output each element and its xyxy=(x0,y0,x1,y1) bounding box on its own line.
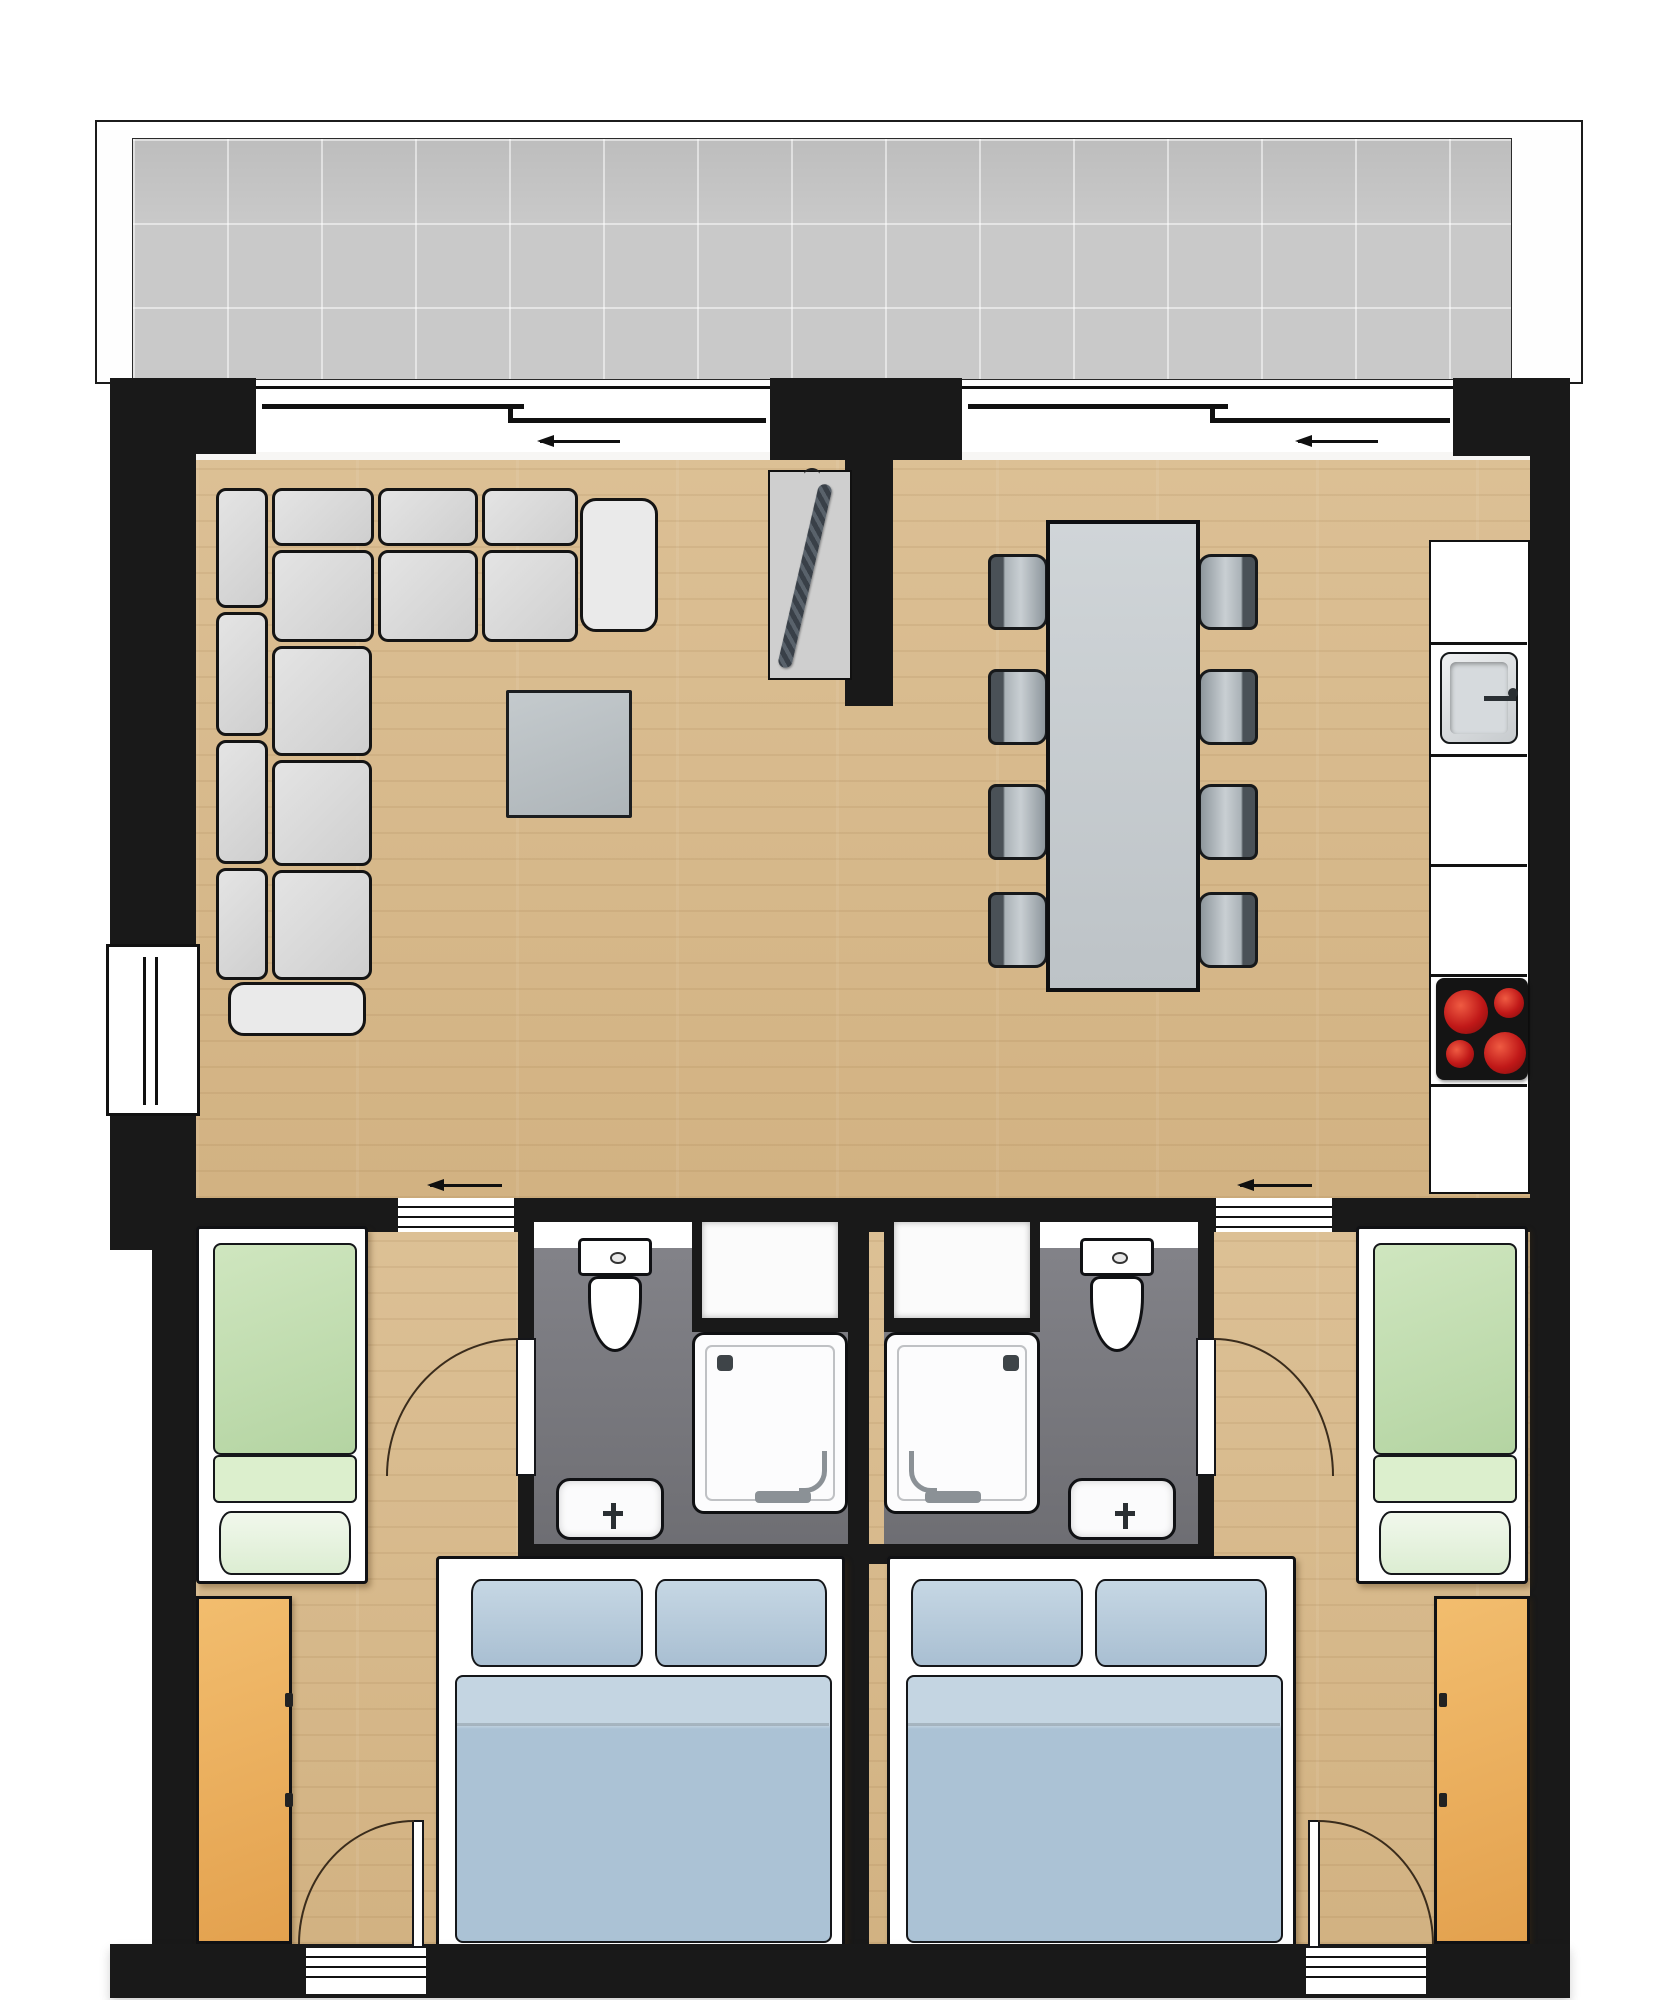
balcony-window-left xyxy=(256,382,770,452)
faucet-crossbar xyxy=(603,1511,623,1516)
sofa-seat-cushion xyxy=(378,550,478,642)
niche-shelf xyxy=(894,1222,1030,1318)
burner xyxy=(1446,1040,1474,1068)
counter-divider xyxy=(1431,754,1527,757)
faucet-crossbar xyxy=(1115,1511,1135,1516)
sofa-back-cushion xyxy=(272,488,374,546)
bed-pillow xyxy=(911,1579,1083,1667)
duvet-fold-line xyxy=(908,1723,1280,1726)
sofa-back-cushion xyxy=(216,488,268,608)
toilet-cistern xyxy=(1080,1238,1154,1276)
counter-divider xyxy=(1431,1084,1527,1087)
floor-plan-canvas xyxy=(0,0,1670,2000)
wardrobe-handle xyxy=(285,1693,293,1707)
left-wall-window xyxy=(106,944,200,1116)
dining-chair xyxy=(1198,669,1258,745)
shower-drain-icon xyxy=(717,1355,733,1371)
double-bed-right xyxy=(887,1556,1296,1948)
stove xyxy=(1436,978,1528,1080)
wardrobe-handle xyxy=(1439,1793,1447,1807)
window-glass-line xyxy=(143,957,146,1105)
entry-door-threshold xyxy=(1306,1948,1426,1994)
shower-tray xyxy=(692,1332,848,1514)
hanger-hook-icon xyxy=(804,468,820,480)
slide-direction-arrow-icon xyxy=(1298,440,1378,443)
right-wall xyxy=(1530,456,1570,1948)
bed-pillow xyxy=(471,1579,643,1667)
kitchen-sink xyxy=(1440,652,1518,744)
left-wall-upper xyxy=(110,378,196,944)
window-glass-line xyxy=(155,957,158,1105)
counter-divider xyxy=(1431,864,1527,867)
wardrobe-handle xyxy=(1439,1693,1447,1707)
bathroom-side-wall xyxy=(1198,1198,1214,1340)
bed-pillow xyxy=(1379,1511,1511,1575)
window-frame-line xyxy=(962,386,1453,389)
t-partition-stem xyxy=(845,456,893,706)
counter-divider xyxy=(1431,642,1527,645)
duvet-fold-line xyxy=(457,1723,829,1726)
sliding-opening-left xyxy=(398,1198,514,1232)
sofa-back-cushion xyxy=(216,740,268,864)
bed-pillow xyxy=(655,1579,827,1667)
left-wall-lower xyxy=(152,1248,196,1948)
top-wall-right-segment xyxy=(1453,378,1570,456)
sliding-pane-line xyxy=(968,404,1228,409)
shower-handle xyxy=(925,1491,981,1503)
sofa-back-cushion xyxy=(216,868,268,980)
left-wall-middle xyxy=(110,1116,196,1250)
bed-duvet xyxy=(906,1675,1283,1943)
sliding-pane-line xyxy=(1210,418,1450,423)
faucet-icon xyxy=(611,1503,616,1529)
balcony-tiles xyxy=(132,138,1512,380)
bed-mattress xyxy=(1373,1243,1517,1455)
kitchen-counter xyxy=(1429,540,1530,1194)
bathroom-left xyxy=(518,1198,866,1564)
double-bed-left xyxy=(436,1556,845,1948)
wardrobe-right xyxy=(1434,1596,1530,1944)
dining-chair xyxy=(988,892,1048,968)
dining-chair xyxy=(988,784,1048,860)
sofa-armrest-right xyxy=(580,498,658,632)
bathroom-door-leaf xyxy=(1196,1338,1216,1476)
sofa-seat-cushion xyxy=(482,550,578,642)
top-wall-middle-segment xyxy=(770,378,962,460)
single-bed-left xyxy=(196,1226,368,1584)
niche-shelf xyxy=(702,1222,838,1318)
sliding-pane-line xyxy=(262,404,524,409)
hanging-garment xyxy=(777,483,833,669)
burner xyxy=(1494,988,1524,1018)
sliding-opening-right xyxy=(1216,1198,1332,1232)
bathroom-washbasin xyxy=(556,1478,664,1540)
shower-tray xyxy=(884,1332,1040,1514)
bed-pillow xyxy=(1095,1579,1267,1667)
sofa-back-cushion xyxy=(378,488,478,546)
faucet-icon xyxy=(1123,1503,1128,1529)
bed-duvet xyxy=(455,1675,832,1943)
dining-chair xyxy=(988,554,1048,630)
dining-chair xyxy=(1198,892,1258,968)
coat-rack xyxy=(768,470,852,680)
sofa-back-cushion xyxy=(482,488,578,546)
balcony-window-right xyxy=(962,382,1453,452)
coffee-table xyxy=(506,690,632,818)
sofa-seat-cushion xyxy=(272,550,374,642)
sofa-seat-cushion xyxy=(272,760,372,866)
sliding-pane-line xyxy=(508,418,766,423)
wardrobe-handle xyxy=(285,1793,293,1807)
bed-pillow xyxy=(219,1511,351,1575)
flush-button-icon xyxy=(1112,1252,1128,1264)
sofa-seat-cushion xyxy=(272,646,372,756)
bed-blanket-fold xyxy=(1373,1455,1517,1503)
flush-button-icon xyxy=(610,1252,626,1264)
bathroom-washbasin xyxy=(1068,1478,1176,1540)
bathroom-side-wall xyxy=(518,1198,534,1340)
burner xyxy=(1444,990,1488,1034)
faucet-knob xyxy=(1508,688,1518,698)
single-bed-right xyxy=(1356,1226,1528,1584)
burner xyxy=(1484,1032,1526,1074)
dining-chair xyxy=(1198,784,1258,860)
pane-connector-line xyxy=(508,404,513,423)
toilet-cistern xyxy=(578,1238,652,1276)
slide-direction-arrow-icon xyxy=(430,1184,502,1187)
dining-chair xyxy=(1198,554,1258,630)
bathroom-right xyxy=(866,1198,1214,1564)
window-frame-line xyxy=(256,386,770,389)
shower-handle xyxy=(755,1491,811,1503)
counter-divider xyxy=(1431,974,1527,977)
bed-blanket-fold xyxy=(213,1455,357,1503)
bed-mattress xyxy=(213,1243,357,1455)
slide-direction-arrow-icon xyxy=(1240,1184,1312,1187)
slide-direction-arrow-icon xyxy=(540,440,620,443)
shower-drain-icon xyxy=(1003,1355,1019,1371)
pane-connector-line xyxy=(1210,404,1215,423)
bathroom-door-leaf xyxy=(516,1338,536,1476)
sofa-seat-cushion xyxy=(272,870,372,980)
dining-table xyxy=(1046,520,1200,992)
dining-chair xyxy=(988,669,1048,745)
sofa-back-cushion xyxy=(216,612,268,736)
sofa-armrest-bottom xyxy=(228,982,366,1036)
entry-door-threshold xyxy=(306,1948,426,1994)
wardrobe-left xyxy=(196,1596,292,1944)
